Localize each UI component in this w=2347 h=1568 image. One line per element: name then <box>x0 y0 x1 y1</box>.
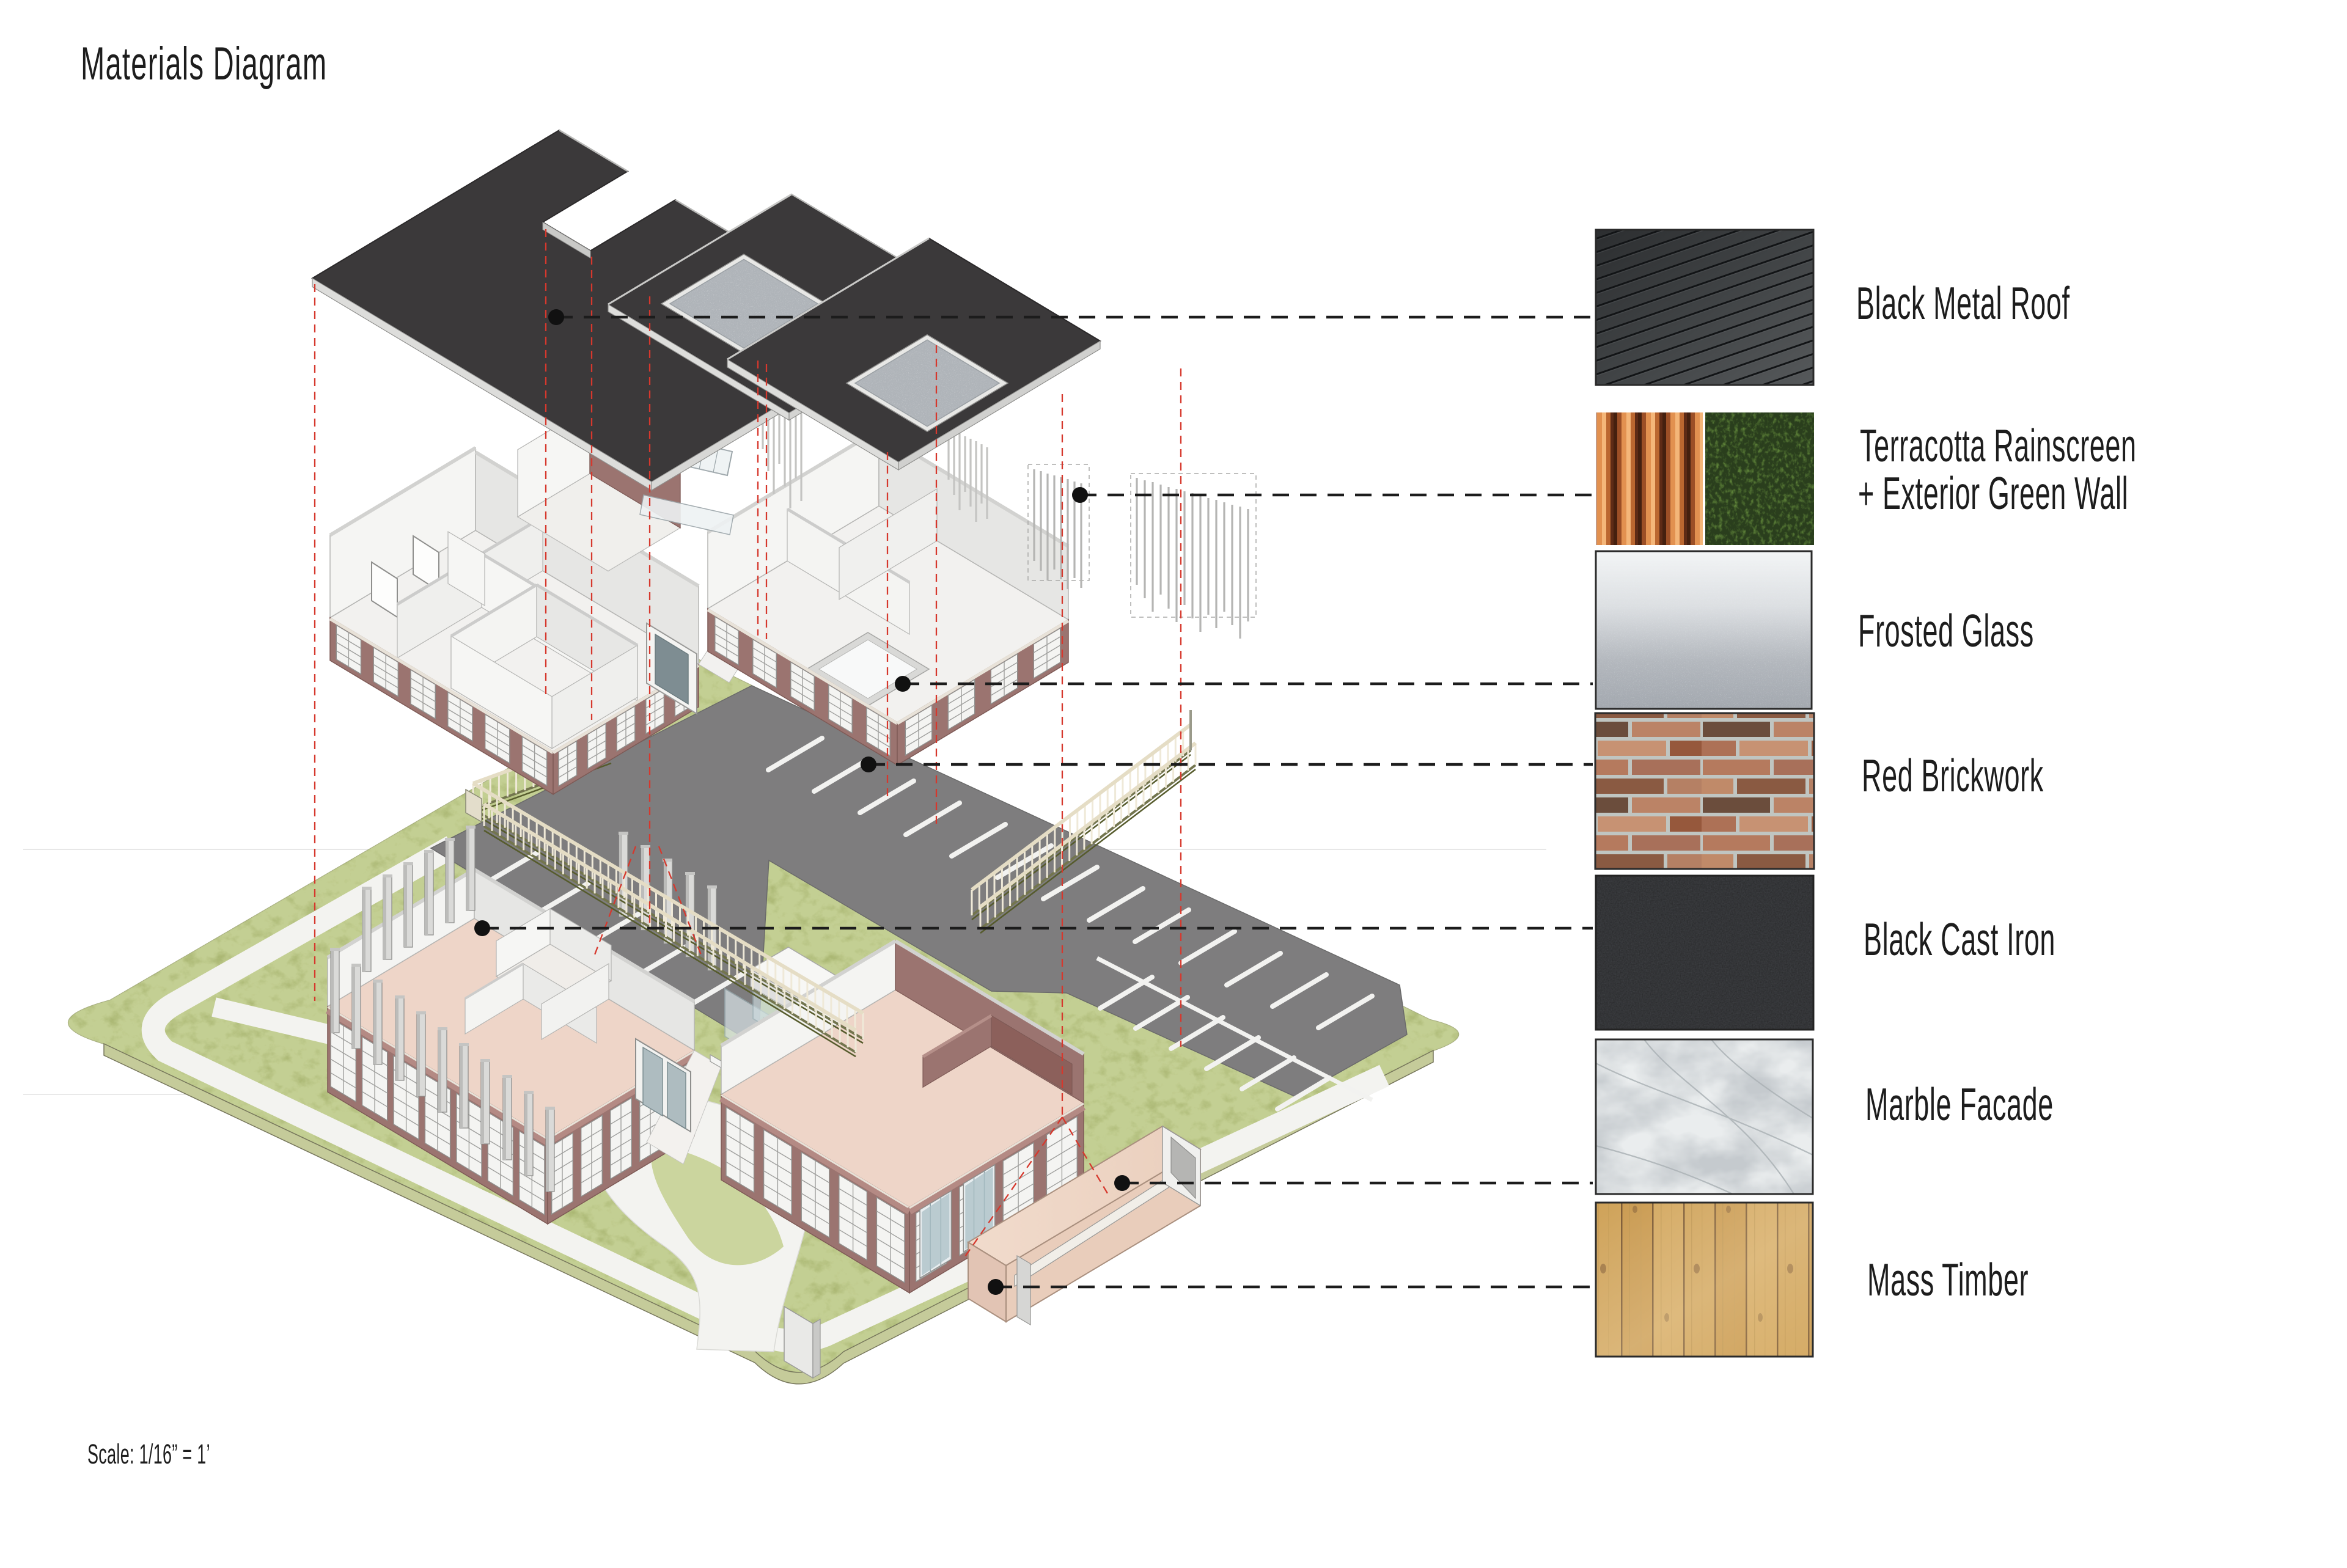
svg-text:Frosted Glass: Frosted Glass <box>1858 606 2034 657</box>
svg-text:Black Cast Iron: Black Cast Iron <box>1864 914 2055 965</box>
svg-text:Marble Facade: Marble Facade <box>1865 1079 2054 1130</box>
svg-text:Terracotta Rainscreen: Terracotta Rainscreen <box>1860 420 2137 472</box>
svg-text:Mass Timber: Mass Timber <box>1867 1255 2029 1306</box>
svg-text:Materials Diagram: Materials Diagram <box>81 38 327 90</box>
svg-text:Red Brickwork: Red Brickwork <box>1862 750 2044 802</box>
svg-text:+ Exterior Green Wall: + Exterior Green Wall <box>1858 468 2128 519</box>
svg-text:Black Metal Roof: Black Metal Roof <box>1856 278 2070 329</box>
svg-text:Scale: 1/16” = 1’: Scale: 1/16” = 1’ <box>87 1438 210 1470</box>
